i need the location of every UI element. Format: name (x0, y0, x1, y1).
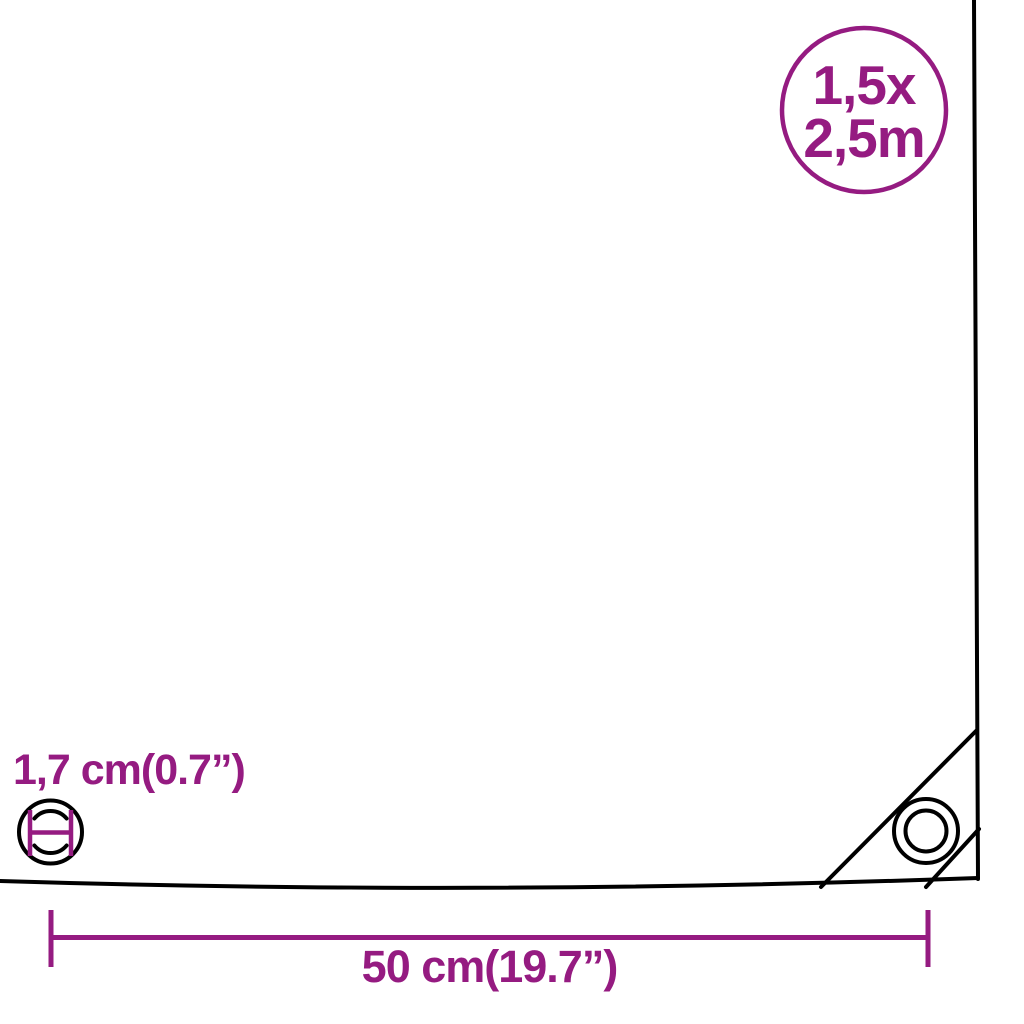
grommet-inner-bottom-arc (34, 846, 66, 854)
size-badge-line2: 2,5m (803, 112, 924, 165)
size-badge-line1: 1,5x (812, 59, 915, 112)
tarp-corner-fold-line (821, 731, 976, 887)
width-dimension-label: 50 cm(19.7”) (51, 941, 928, 993)
grommet-inner-top-arc (34, 811, 66, 819)
tarp-right-edge (974, 0, 978, 879)
tarpaulin-dimension-diagram: 1,5x 2,5m 1,7 cm(0.7”) 50 cm(19.7”) (0, 0, 1024, 1024)
grommet-diameter-icon (19, 801, 82, 864)
grommet-diameter-label: 1,7 cm(0.7”) (13, 746, 245, 795)
corner-grommet-icon (894, 799, 958, 863)
size-badge: 1,5x 2,5m (782, 28, 946, 196)
tarp-bottom-edge (0, 878, 978, 888)
